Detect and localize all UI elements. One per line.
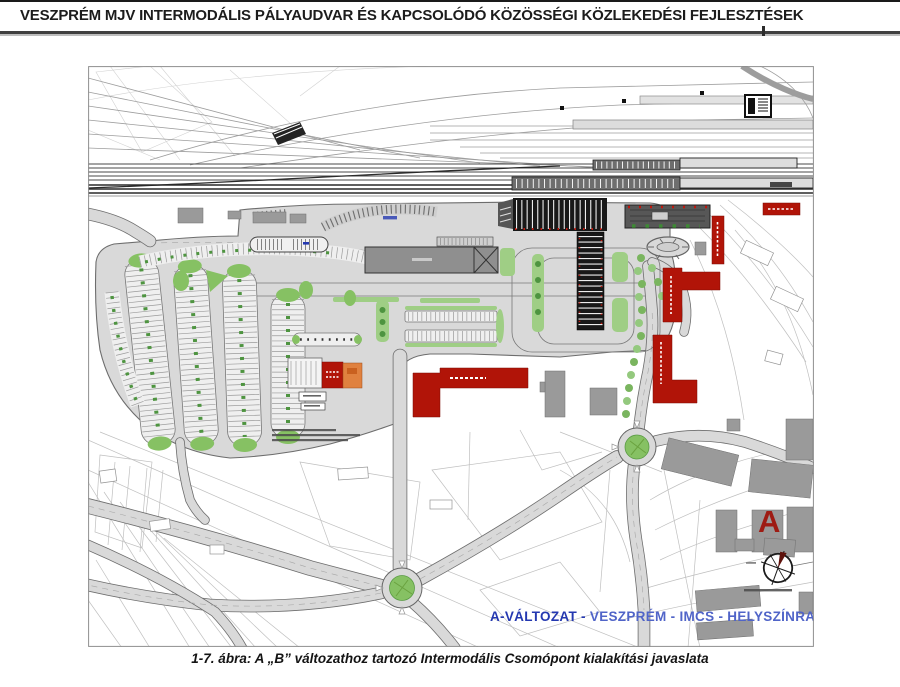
title-rule-tick [762,26,765,36]
railway-tracks [88,66,813,196]
document-page: VESZPRÉM MJV INTERMODÁLIS PÁLYAUDVAR ÉS … [0,0,900,687]
bus-bays-column [577,232,604,330]
freight-building [365,247,498,273]
page-top-border [0,0,900,2]
bus-bays-top [498,198,607,231]
site-plan-figure: A-VÁLTOZAT - VESZPRÉM - IMCS - HELYSZÍNR… [88,66,814,647]
title-rule-shadow [0,34,900,36]
figure-caption: 1-7. ábra: A „B” változathoz tartozó Int… [0,651,900,666]
area-marker: A [758,504,780,539]
station-building [625,205,710,228]
plan-annotations: A-VÁLTOZAT - VESZPRÉM - IMCS - HELYSZÍNR… [490,504,814,624]
site-plan-svg: A-VÁLTOZAT - VESZPRÉM - IMCS - HELYSZÍNR… [88,66,814,647]
page-title: VESZPRÉM MJV INTERMODÁLIS PÁLYAUDVAR ÉS … [20,7,880,24]
plan-scale-label: A-VÁLTOZAT - VESZPRÉM - IMCS - HELYSZÍNR… [490,609,814,624]
roundabout-east [612,421,656,472]
railway-platforms [512,158,813,190]
